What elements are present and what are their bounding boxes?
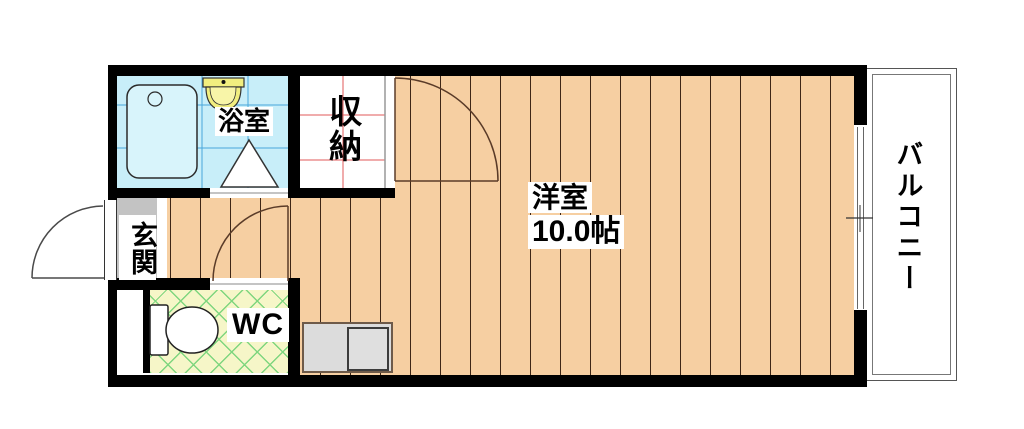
wall-wc-niche-divider <box>143 290 150 373</box>
entrance-door-opening <box>104 200 117 280</box>
wall-right-upper <box>854 76 867 125</box>
entrance-door-swing <box>32 206 104 278</box>
closet-label: 収納 <box>325 94 360 164</box>
wall-wc-right <box>288 278 300 385</box>
entrance-step-edge <box>157 198 167 280</box>
bathroom-label: 浴室 <box>215 107 273 136</box>
floor-plan: 浴室 収納 玄関 WC 洋室 10.0帖 バルコニー <box>0 0 1024 429</box>
balcony-window-opening <box>854 125 867 310</box>
main-room-size: 10.0帖 <box>528 215 624 249</box>
wall-left-upper <box>108 65 117 200</box>
wall-bath-closet-divider <box>288 65 300 198</box>
wall-bathroom-bottom <box>108 188 210 198</box>
main-room-label: 洋室 <box>528 182 592 213</box>
wall-closet-bottom <box>288 188 395 198</box>
wc-niche <box>117 290 143 373</box>
wall-right-lower <box>854 310 867 387</box>
balcony-label: バルコニー <box>893 140 921 295</box>
wall-top <box>108 65 867 76</box>
wc-label: WC <box>227 308 289 342</box>
entrance-label: 玄関 <box>119 215 156 280</box>
wall-left-lower <box>108 280 117 387</box>
counter-sink <box>347 327 389 371</box>
wall-bottom <box>108 375 867 387</box>
